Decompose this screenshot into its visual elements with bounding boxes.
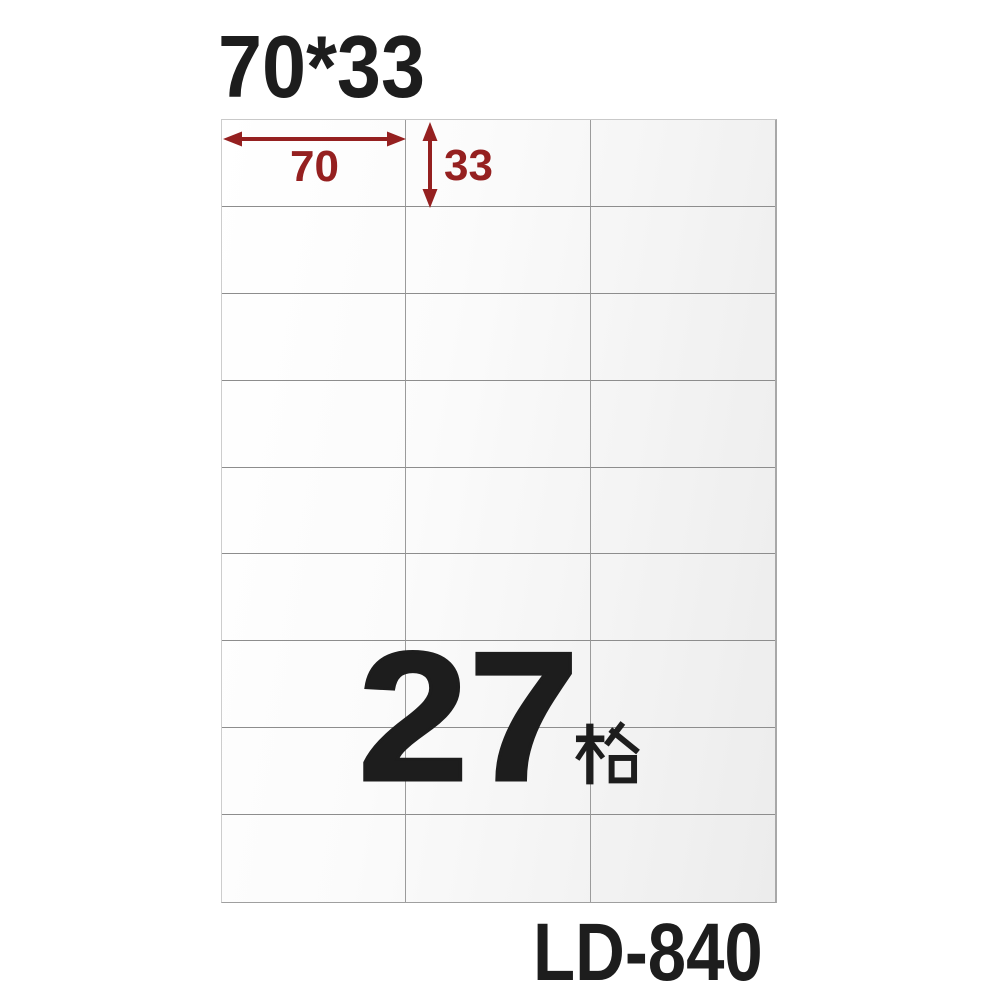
width-value-label: 70 (222, 145, 407, 189)
page-title: 70*33 (218, 23, 425, 111)
label-cell (222, 381, 406, 468)
label-cell (591, 468, 775, 555)
label-cell (406, 815, 590, 902)
label-cell (222, 468, 406, 555)
label-cell (591, 554, 775, 641)
label-cell (406, 381, 590, 468)
label-cell (406, 468, 590, 555)
cell-count-number: 27 (358, 624, 579, 808)
label-cell (591, 381, 775, 468)
height-arrow-icon (423, 122, 438, 208)
height-value-label: 33 (444, 144, 493, 188)
label-cell (406, 294, 590, 381)
label-cell (591, 641, 775, 728)
product-spec-image: 70*33 70 33 27 LD-840 (0, 0, 1000, 1000)
label-cell (591, 815, 775, 902)
label-cell (591, 294, 775, 381)
label-cell (222, 815, 406, 902)
cell-count-unit-ge-glyph (574, 718, 640, 790)
label-cell (222, 294, 406, 381)
product-code-label: LD-840 (533, 912, 763, 994)
